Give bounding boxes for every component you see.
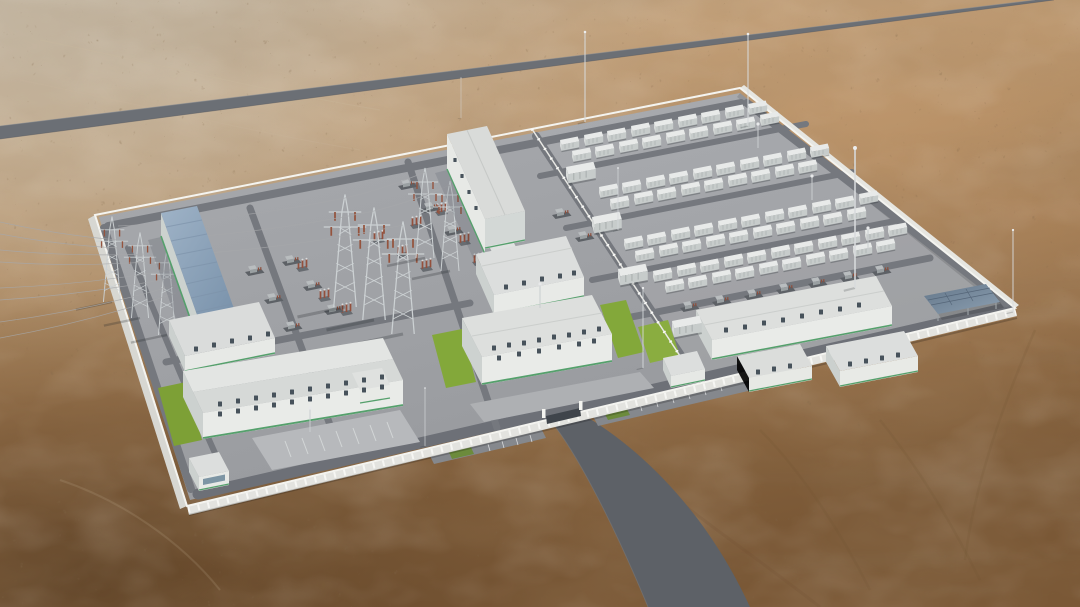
window xyxy=(218,402,222,407)
window xyxy=(272,403,276,408)
window xyxy=(838,307,842,312)
window xyxy=(380,375,384,380)
window xyxy=(290,390,294,395)
window xyxy=(380,385,384,390)
window xyxy=(212,343,216,348)
window xyxy=(266,332,270,337)
window xyxy=(762,321,766,326)
window xyxy=(362,388,366,393)
window xyxy=(772,367,776,372)
window xyxy=(537,349,541,354)
window xyxy=(362,378,366,383)
window xyxy=(504,285,508,290)
window xyxy=(474,206,477,210)
insulator-stack xyxy=(410,215,423,229)
window xyxy=(522,341,526,346)
window xyxy=(453,158,456,162)
window xyxy=(880,356,884,361)
insulator-stack xyxy=(318,288,331,302)
window xyxy=(344,381,348,386)
window xyxy=(743,325,747,330)
window xyxy=(537,338,541,343)
window xyxy=(326,384,330,389)
window xyxy=(522,281,526,286)
window xyxy=(230,339,234,344)
window xyxy=(308,387,312,392)
window xyxy=(788,364,792,369)
window xyxy=(848,362,852,367)
window xyxy=(567,333,571,338)
window xyxy=(864,359,868,364)
window xyxy=(254,406,258,411)
window xyxy=(724,328,728,333)
window xyxy=(248,336,252,341)
aerial-render xyxy=(0,0,1080,607)
window xyxy=(497,356,501,361)
window xyxy=(857,303,861,308)
window xyxy=(218,412,222,417)
window xyxy=(540,277,544,282)
window xyxy=(781,318,785,323)
window xyxy=(819,310,823,315)
window xyxy=(326,394,330,399)
insulator-stack xyxy=(420,258,433,272)
window xyxy=(236,409,240,414)
window xyxy=(896,353,900,358)
window xyxy=(597,327,601,332)
window xyxy=(517,352,521,357)
window xyxy=(254,396,258,401)
window xyxy=(572,271,576,276)
window xyxy=(272,393,276,398)
window xyxy=(577,342,581,347)
window xyxy=(344,391,348,396)
window xyxy=(492,346,496,351)
window xyxy=(467,190,470,194)
window xyxy=(460,174,463,178)
window xyxy=(592,339,596,344)
window xyxy=(290,400,294,405)
window xyxy=(756,370,760,375)
window xyxy=(800,314,804,319)
window xyxy=(308,397,312,402)
window xyxy=(558,274,562,279)
window xyxy=(552,335,556,340)
window xyxy=(557,345,561,350)
window xyxy=(194,347,198,352)
window xyxy=(507,343,511,348)
window xyxy=(236,399,240,404)
window xyxy=(582,330,586,335)
